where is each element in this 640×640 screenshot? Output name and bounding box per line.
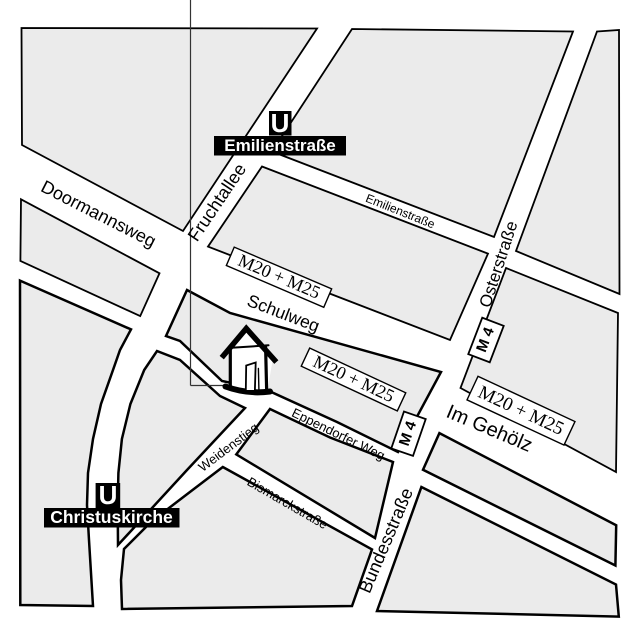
svg-text:Christuskirche: Christuskirche (50, 507, 173, 527)
svg-text:U: U (271, 108, 290, 138)
svg-text:Emilienstraße: Emilienstraße (224, 136, 336, 155)
svg-text:U: U (99, 480, 118, 510)
